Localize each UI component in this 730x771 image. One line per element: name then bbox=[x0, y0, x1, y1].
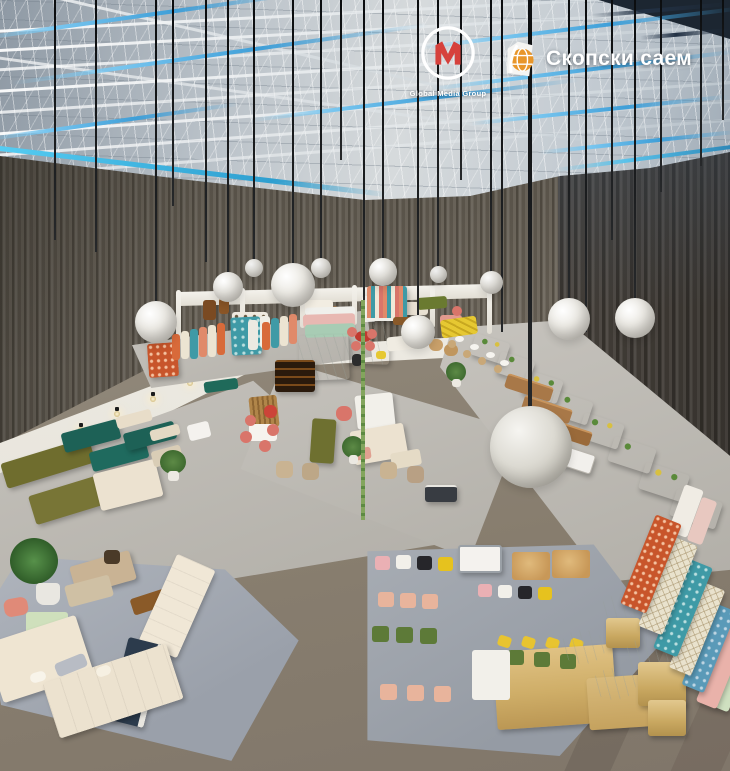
plant-pot bbox=[36, 583, 60, 605]
coral-chair bbox=[367, 329, 377, 339]
hanging-rod bbox=[320, 0, 322, 259]
dark-console bbox=[425, 485, 457, 502]
cushion-brown bbox=[104, 550, 120, 564]
globe-logo-icon bbox=[506, 40, 537, 78]
white-console bbox=[458, 545, 502, 573]
hanging-rod bbox=[292, 0, 294, 264]
room-divider bbox=[487, 288, 492, 334]
m-circle-logo-icon bbox=[419, 24, 477, 82]
pendant-lamp bbox=[401, 315, 435, 349]
wall-lamp bbox=[150, 396, 156, 402]
rug-stand bbox=[367, 286, 407, 321]
olive-sofa bbox=[309, 418, 336, 464]
hanging-rod bbox=[611, 0, 613, 240]
hanging-rod bbox=[660, 0, 662, 192]
coral-chair bbox=[347, 327, 357, 337]
coral-chair bbox=[267, 424, 279, 436]
chair-peach bbox=[407, 685, 424, 701]
tan-armchair bbox=[407, 466, 424, 483]
round-table-marble bbox=[592, 668, 636, 700]
plant-pot bbox=[452, 379, 461, 387]
coral-chair bbox=[259, 440, 271, 452]
skopski-saem-label: Скопски саем bbox=[546, 47, 692, 71]
plant-pot bbox=[349, 455, 358, 464]
cafe-chair bbox=[494, 365, 502, 373]
chair-green bbox=[372, 626, 389, 642]
pendant-lamp bbox=[311, 258, 331, 278]
chair-black bbox=[417, 556, 432, 570]
small-round-table bbox=[455, 336, 464, 342]
chair-peach bbox=[434, 686, 451, 702]
olive-sofa bbox=[417, 296, 448, 310]
rug-roll bbox=[181, 331, 189, 359]
wood-cube bbox=[648, 700, 686, 736]
round-table-marble bbox=[560, 630, 606, 664]
rug-roll bbox=[248, 320, 258, 350]
rug-roll bbox=[172, 334, 180, 360]
cafe-chair bbox=[463, 350, 471, 358]
rug-roll bbox=[217, 323, 225, 355]
chair-white bbox=[396, 555, 411, 569]
coral-chair bbox=[351, 341, 361, 351]
chair-yellow bbox=[438, 557, 453, 571]
rug-roll bbox=[190, 329, 198, 359]
chair-green bbox=[396, 627, 413, 643]
rug-roll bbox=[199, 327, 207, 357]
hanging-rod bbox=[155, 0, 157, 302]
chair-peach bbox=[380, 684, 397, 700]
plant-pot bbox=[168, 471, 179, 481]
hanging-rod bbox=[340, 0, 342, 160]
rug-roll bbox=[280, 316, 288, 346]
bar-chair-green bbox=[508, 650, 524, 665]
chair-pink bbox=[478, 584, 492, 597]
pendant-lamp bbox=[480, 271, 503, 294]
rug-roll bbox=[289, 314, 297, 344]
red-armchair bbox=[264, 405, 277, 418]
hanging-rod bbox=[54, 0, 56, 240]
coral-armchair bbox=[336, 406, 352, 421]
small-round-table bbox=[500, 360, 509, 366]
dark-shelf-cabinet bbox=[275, 360, 315, 392]
global-media-group-label: Global Media Group bbox=[402, 89, 494, 98]
small-round-table bbox=[470, 344, 479, 350]
pendant-lamp bbox=[245, 259, 263, 277]
chair-yellow bbox=[538, 587, 552, 600]
pendant-lamp bbox=[135, 301, 177, 343]
cafe-chair bbox=[478, 357, 486, 365]
rug-roll bbox=[262, 322, 270, 350]
tan-armchair bbox=[380, 462, 397, 479]
pendant-lamp-large bbox=[490, 406, 572, 488]
hanging-rod bbox=[172, 0, 174, 206]
round-table-wood bbox=[552, 550, 590, 578]
coral-chair bbox=[365, 341, 375, 351]
small-round-table bbox=[486, 352, 495, 358]
chair-peach bbox=[400, 593, 416, 608]
coral-chair bbox=[240, 431, 252, 443]
pendant-lamp bbox=[369, 258, 397, 286]
hanging-rod bbox=[382, 0, 384, 259]
green-ladder-pole bbox=[361, 300, 365, 520]
hanging-rod bbox=[700, 0, 702, 166]
global-media-group-logo: Global Media Group bbox=[402, 24, 494, 98]
chair-peach bbox=[378, 592, 394, 607]
chair-green bbox=[420, 628, 437, 644]
pendant-lamp bbox=[548, 298, 590, 340]
rug-roll bbox=[208, 325, 216, 357]
exhibition-hall-render: Global Media Group Скопски саем bbox=[0, 0, 730, 771]
yellow-stool bbox=[376, 351, 386, 359]
chair-peach bbox=[422, 594, 438, 609]
hanging-rod bbox=[227, 0, 229, 273]
chair-pink bbox=[375, 556, 390, 570]
hanging-rod bbox=[363, 0, 365, 300]
tan-armchair bbox=[302, 463, 319, 480]
hanging-rod bbox=[95, 0, 97, 252]
hanging-rod bbox=[253, 0, 255, 260]
cafe-chair bbox=[448, 340, 456, 348]
wood-chair bbox=[203, 300, 216, 320]
skopski-saem-logo: Скопски саем bbox=[506, 40, 692, 78]
plant-large bbox=[10, 538, 58, 584]
rug-roll bbox=[271, 318, 279, 348]
hanging-rod bbox=[722, 0, 724, 120]
pendant-lamp bbox=[213, 272, 243, 302]
round-table-wood bbox=[512, 552, 550, 580]
chair-black bbox=[518, 586, 532, 599]
pendant-lamp bbox=[271, 263, 315, 307]
coral-chair bbox=[245, 415, 256, 426]
pendant-lamp bbox=[615, 298, 655, 338]
chair-white bbox=[498, 585, 512, 598]
bar-chair-green bbox=[534, 652, 550, 667]
tan-armchair bbox=[276, 461, 293, 478]
coral-armchair bbox=[452, 306, 462, 316]
hanging-rod bbox=[205, 0, 207, 262]
round-table-white bbox=[472, 650, 510, 700]
pendant-lamp bbox=[430, 266, 447, 283]
